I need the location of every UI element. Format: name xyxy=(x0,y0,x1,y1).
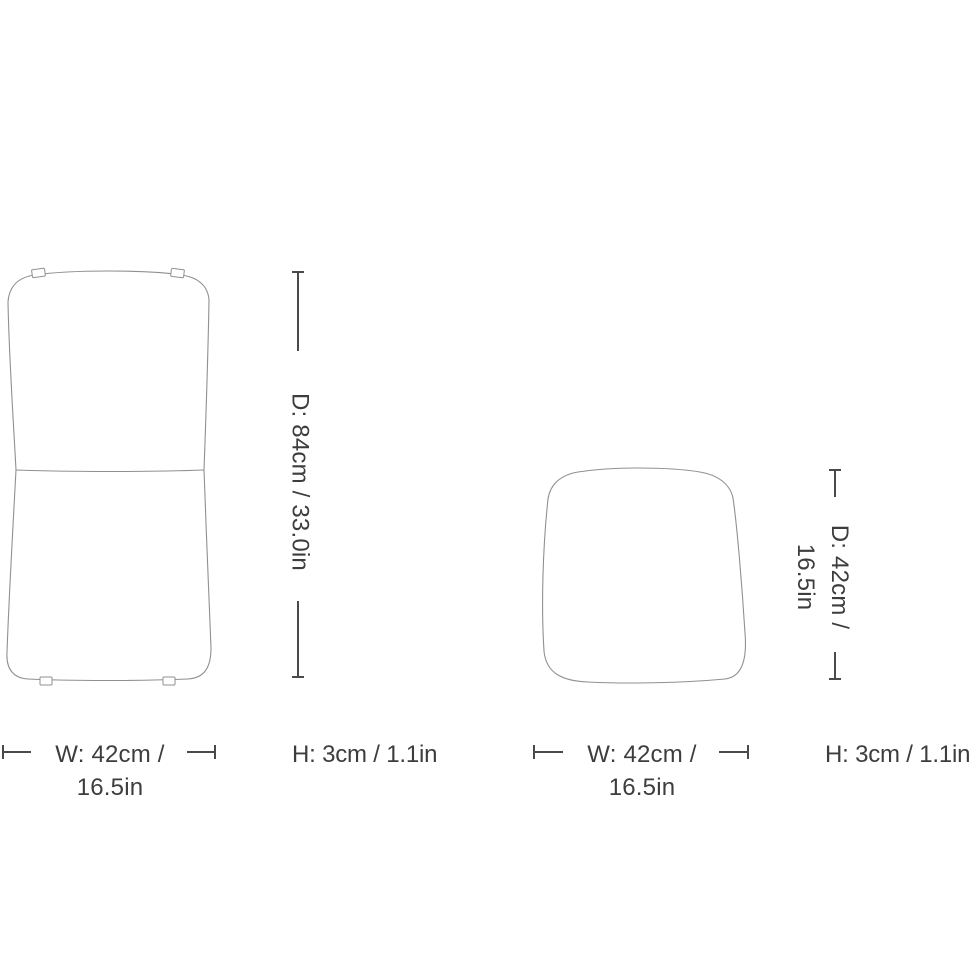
full-cover-depth-line-top-segment xyxy=(297,271,299,351)
seat-pad-depth-label-line2: 16.5in xyxy=(788,525,822,630)
full-cover-bottom-left-tab xyxy=(40,677,52,685)
full-cover-depth-line-bottom-segment xyxy=(297,601,299,678)
full-cover-depth-line-bottom-cap xyxy=(292,676,304,678)
full-cover-bottom-right-tab xyxy=(163,677,175,685)
full-cover-width-line-right-cap xyxy=(214,745,216,759)
full-cover-top-left-tab xyxy=(32,268,46,278)
full-cover-depth-label: D: 84cm / 33.0in xyxy=(284,393,317,571)
full-cover-height-label: H: 3cm / 1.1in xyxy=(292,738,437,771)
seat-pad-width-label-line2: 16.5in xyxy=(572,771,712,804)
seat-pad-depth-line-bottom-cap xyxy=(829,678,841,680)
seat-pad-width-line-right-segment xyxy=(719,751,748,753)
full-cover-width-label: W: 42cm / 16.5in xyxy=(40,738,180,804)
seat-pad-width-label-line1: W: 42cm / xyxy=(572,738,712,771)
seat-pad-width-line-left-segment xyxy=(534,751,563,753)
seat-pad-depth-label: D: 42cm / 16.5in xyxy=(788,525,856,630)
seat-pad-height-label: H: 3cm / 1.1in xyxy=(825,738,970,771)
cushion-dimension-diagram: D: 84cm / 33.0in W: 42cm / 16.5in H: 3cm… xyxy=(0,0,970,971)
seat-pad-depth-label-line1: D: 42cm / xyxy=(822,525,856,630)
full-cover-width-line-left-segment xyxy=(3,751,31,753)
full-cover-top-right-tab xyxy=(171,268,185,278)
seat-pad-depth-line-bottom-segment xyxy=(834,652,836,680)
full-cover-width-label-line1: W: 42cm / xyxy=(40,738,180,771)
full-cover-width-line-right-segment xyxy=(187,751,215,753)
seat-pad-outline xyxy=(532,465,750,687)
full-cover-seam-line xyxy=(16,470,204,472)
seat-pad-width-label: W: 42cm / 16.5in xyxy=(572,738,712,804)
seat-pad-width-line-right-cap xyxy=(747,745,749,759)
full-cover-width-label-line2: 16.5in xyxy=(40,771,180,804)
seat-pad-body-path xyxy=(543,468,746,683)
full-cover-body-path xyxy=(7,271,211,681)
full-cover-outline xyxy=(0,266,218,690)
seat-pad-depth-line-top-segment xyxy=(834,469,836,497)
